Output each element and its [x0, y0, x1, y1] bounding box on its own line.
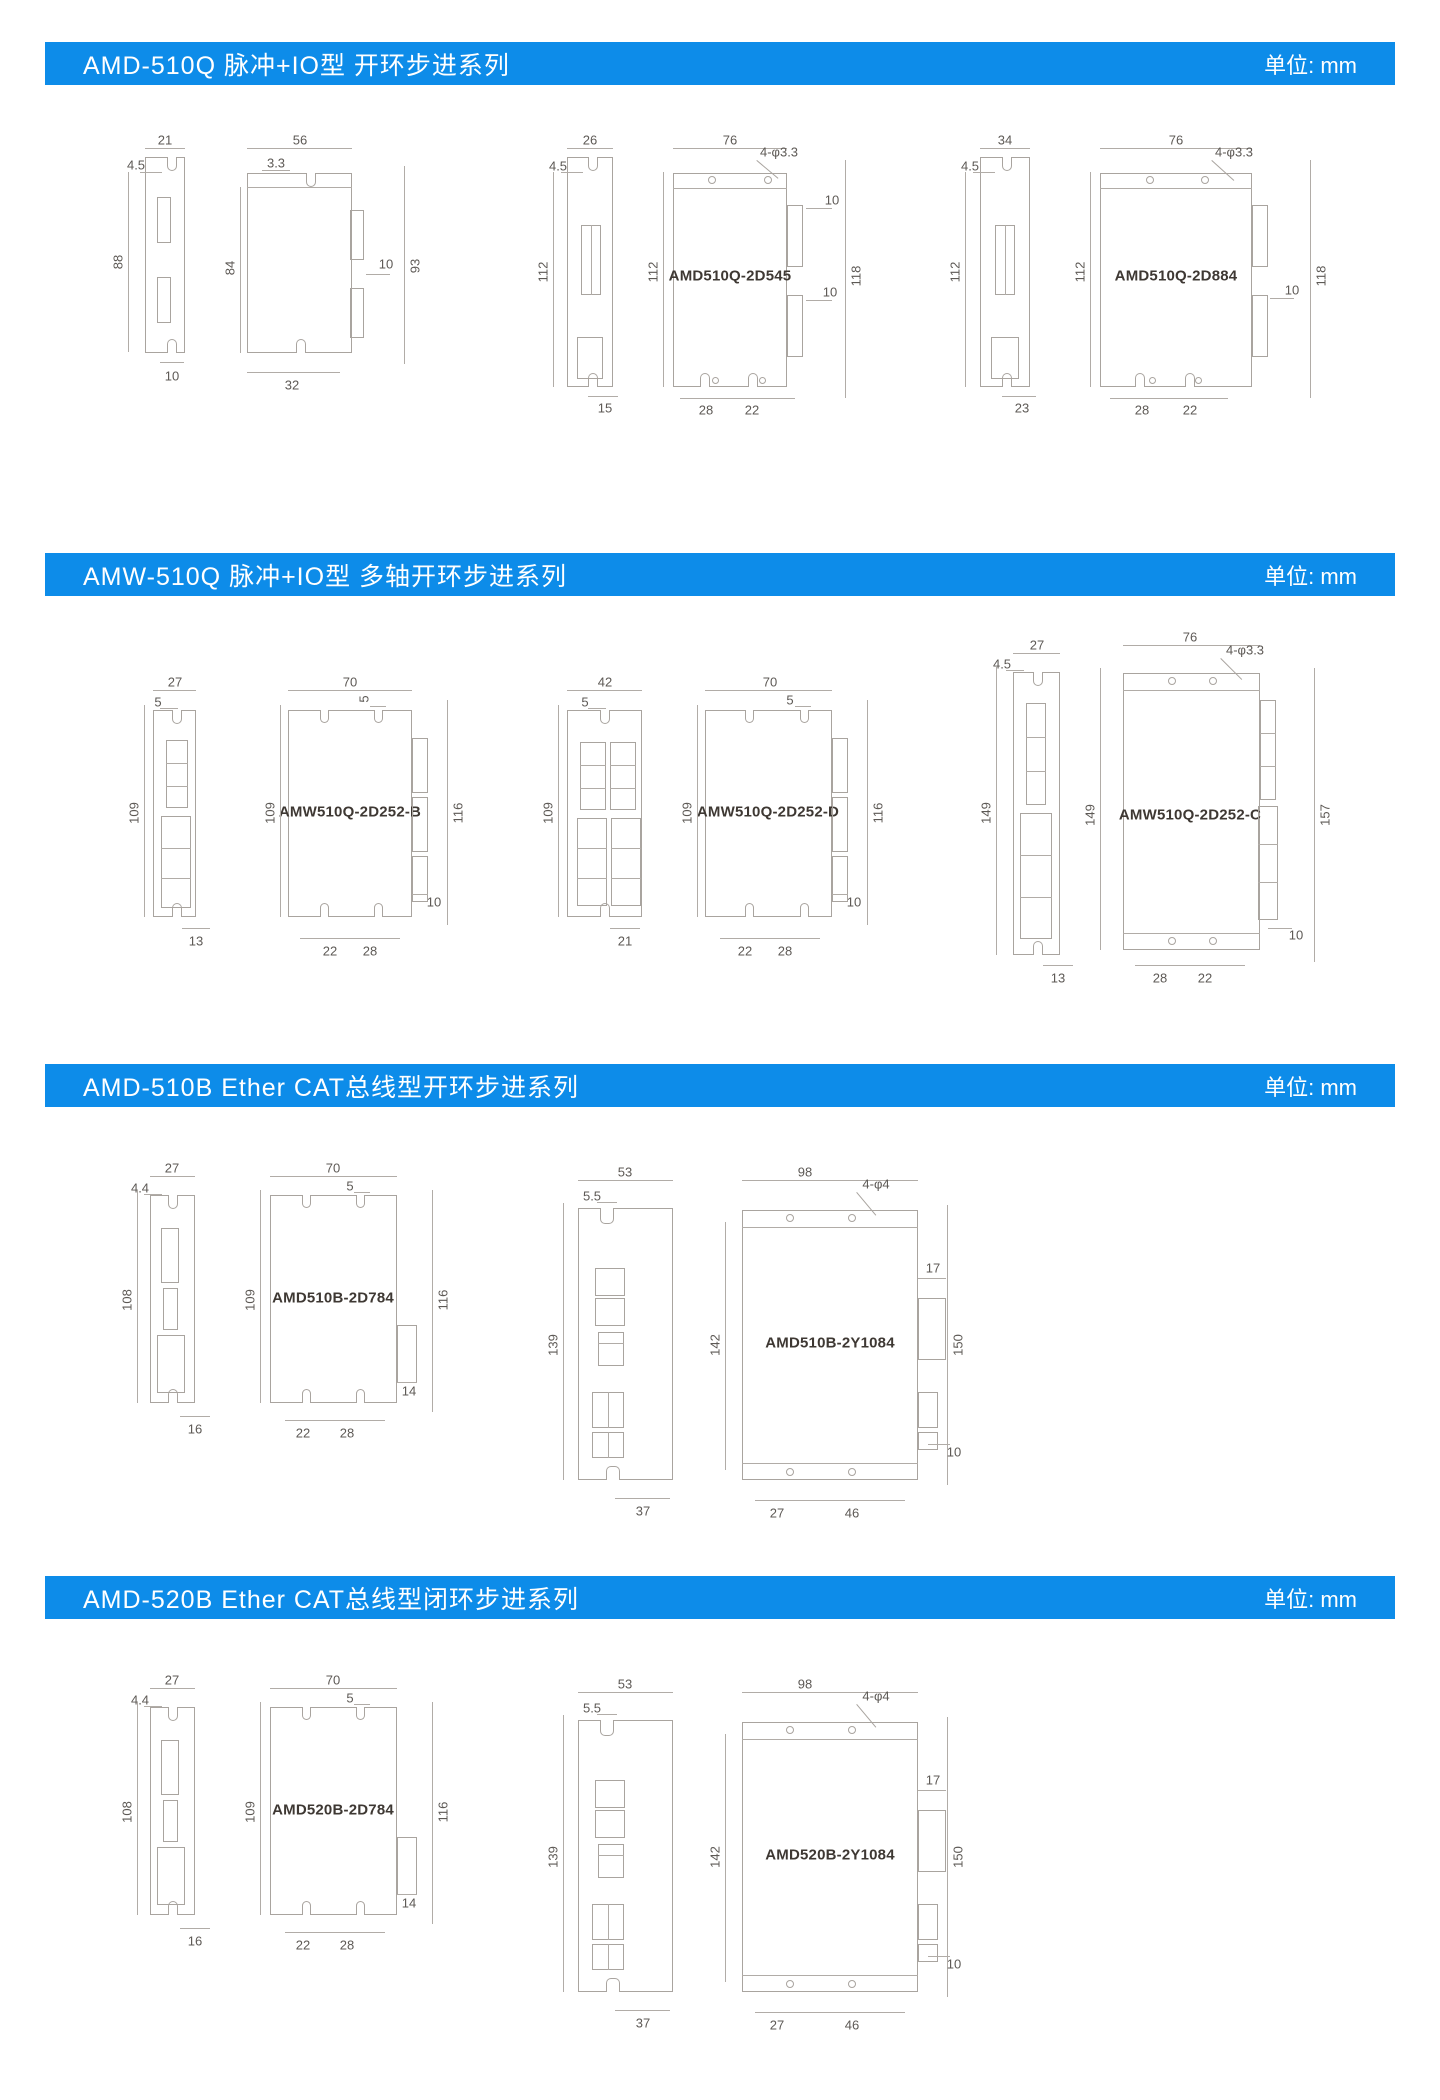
device-outline — [161, 1228, 179, 1283]
mounting-notch — [1185, 373, 1195, 387]
model-label: AMW510Q-2D252-C — [1119, 807, 1261, 824]
drawing-line — [432, 1702, 433, 1924]
drawing-line — [137, 1190, 138, 1403]
unit-label: 单位: mm — [1264, 559, 1357, 591]
dimension-label: 149 — [1083, 804, 1098, 826]
drawing-line — [161, 848, 191, 849]
drawing-line — [832, 894, 848, 895]
drawing-line — [160, 708, 178, 709]
drawing-line — [404, 166, 405, 364]
drawing-line — [247, 187, 352, 188]
drawing-line — [588, 708, 606, 709]
mounting-notch — [606, 1466, 620, 1480]
device-outline — [412, 797, 428, 852]
dimension-label: 150 — [951, 1334, 966, 1356]
mounting-notch — [606, 1978, 620, 1992]
device-outline — [412, 738, 428, 793]
drawing-line — [1260, 733, 1276, 734]
device-outline — [598, 1332, 624, 1366]
unit-label: 单位: mm — [1264, 1582, 1357, 1614]
dimension-label: 5 — [346, 1179, 353, 1194]
drawing-line — [145, 148, 185, 149]
mounting-notch — [1002, 157, 1012, 171]
drawing-line — [397, 1894, 417, 1895]
mounting-hole — [1209, 677, 1217, 685]
drawing-line — [558, 705, 559, 917]
device-outline — [918, 1392, 938, 1428]
mounting-notch — [356, 1195, 365, 1208]
dimension-label: 37 — [636, 2016, 650, 2031]
drawing-line — [742, 1463, 918, 1464]
drawing-line — [144, 705, 145, 917]
mounting-notch — [745, 903, 754, 917]
dimension-label: 10 — [947, 1957, 961, 1972]
drawing-line — [247, 148, 352, 149]
device-outline — [577, 337, 603, 379]
drawing-line — [563, 1715, 564, 1992]
drawing-line — [285, 1420, 385, 1421]
mounting-hole — [848, 1980, 856, 1988]
dimension-label: 17 — [926, 1261, 940, 1276]
dimension-label: 4-φ3.3 — [760, 145, 798, 160]
dimension-label: 108 — [120, 1801, 135, 1823]
drawing-line — [610, 788, 636, 789]
mounting-notch — [600, 1208, 614, 1224]
drawing-line — [610, 765, 636, 766]
mounting-notch — [296, 339, 306, 353]
unit-label: 单位: mm — [1264, 1070, 1357, 1102]
drawing-line — [928, 1444, 950, 1445]
mounting-notch — [600, 710, 610, 724]
drawing-line — [1260, 766, 1276, 767]
device-outline — [163, 1800, 178, 1842]
dimension-label: 27 — [770, 1506, 784, 1521]
device-outline — [595, 1268, 625, 1296]
dimension-label: 22 — [745, 403, 759, 418]
dimension-label: 108 — [120, 1289, 135, 1311]
drawing-line — [561, 172, 583, 173]
dimension-label: 27 — [165, 1673, 179, 1688]
dimension-label: 116 — [451, 803, 466, 824]
drawing-line — [128, 172, 129, 352]
device-outline — [1026, 703, 1046, 805]
dimension-label: 17 — [926, 1773, 940, 1788]
drawing-line — [1002, 396, 1036, 397]
device-outline — [787, 205, 803, 267]
drawing-line — [580, 788, 606, 789]
dimension-label: 76 — [1183, 630, 1197, 645]
drawing-line — [260, 1702, 261, 1915]
dimension-label: 21 — [158, 133, 172, 148]
dimension-label: 70 — [326, 1673, 340, 1688]
mounting-notch — [588, 157, 598, 171]
mounting-notch — [1135, 373, 1145, 387]
dimension-label: 112 — [536, 262, 551, 283]
drawing-line — [166, 763, 188, 764]
drawing-line — [578, 1180, 673, 1181]
dimension-label: 14 — [402, 1384, 416, 1399]
dimension-label: 27 — [165, 1161, 179, 1176]
device-outline — [157, 1847, 185, 1905]
drawing-line — [1135, 965, 1245, 966]
drawing-line — [161, 878, 191, 879]
drawing-line — [1110, 398, 1228, 399]
dimension-label: 112 — [646, 262, 661, 283]
drawing-line — [144, 1194, 162, 1195]
dimension-label: 15 — [598, 401, 612, 416]
dimension-label: 28 — [363, 944, 377, 959]
mounting-notch — [320, 903, 329, 917]
dimension-label: 14 — [402, 1896, 416, 1911]
mounting-notch — [168, 1707, 178, 1721]
dimension-label: 22 — [738, 944, 752, 959]
dimension-label: 26 — [583, 133, 597, 148]
device-outline — [918, 1904, 938, 1940]
dimension-label: 28 — [340, 1938, 354, 1953]
dimension-label: 70 — [763, 675, 777, 690]
dimension-label: 70 — [343, 675, 357, 690]
drawing-line — [288, 690, 412, 691]
section-header: AMD-510B Ether CAT总线型开环步进系列 单位: mm — [45, 1064, 1395, 1107]
drawing-line — [611, 878, 641, 879]
drawing-line — [432, 1190, 433, 1412]
device-outline — [1252, 295, 1268, 357]
drawing-line — [591, 225, 592, 295]
drawing-line — [725, 1222, 726, 1470]
device-outline — [918, 1810, 946, 1872]
drawing-line — [180, 1928, 210, 1929]
dimension-label: 139 — [546, 1846, 561, 1868]
drawing-line — [597, 1714, 617, 1715]
section-header: AMW-510Q 脉冲+IO型 多轴开环步进系列 单位: mm — [45, 553, 1395, 596]
drawing-line — [578, 1692, 673, 1693]
dimension-label: 27 — [1030, 638, 1044, 653]
drawing-line — [140, 172, 162, 173]
mounting-hole — [1149, 377, 1156, 384]
dimension-label: 5 — [786, 693, 793, 708]
mounting-hole — [786, 1468, 794, 1476]
drawing-line — [270, 1688, 397, 1689]
drawing-line — [588, 396, 618, 397]
dimension-label: 10 — [427, 895, 441, 910]
drawing-line — [397, 1382, 417, 1383]
dimension-label: 10 — [823, 285, 837, 300]
dimension-label: 22 — [1183, 403, 1197, 418]
device-outline — [577, 818, 607, 906]
dimension-label: 28 — [778, 944, 792, 959]
mounting-hole — [1209, 937, 1217, 945]
drawing-line — [180, 1416, 210, 1417]
drawing-line — [973, 172, 995, 173]
device-outline — [918, 1298, 946, 1360]
dimension-label: 70 — [326, 1161, 340, 1176]
dimension-label: 139 — [546, 1334, 561, 1356]
dimension-label: 37 — [636, 1504, 650, 1519]
model-label: AMD520B-2D784 — [272, 1802, 394, 1819]
device-outline — [991, 337, 1019, 379]
drawing-line — [285, 1932, 385, 1933]
drawing-line — [577, 848, 607, 849]
drawing-line — [608, 1904, 609, 1940]
mounting-notch — [172, 710, 182, 724]
dimension-label: 10 — [1285, 283, 1299, 298]
drawing-line — [947, 1717, 948, 1997]
drawing-line — [240, 187, 241, 353]
dimension-label: 88 — [111, 255, 126, 269]
drawing-line — [563, 1203, 564, 1480]
drawing-line — [705, 690, 832, 691]
drawing-line — [742, 1180, 918, 1181]
dimension-label: 10 — [847, 895, 861, 910]
drawing-line — [725, 1734, 726, 1982]
drawing-line — [354, 1192, 370, 1193]
mounting-notch — [374, 710, 383, 723]
drawing-line — [567, 690, 642, 691]
dimension-label: 118 — [1314, 266, 1329, 287]
dimension-label: 150 — [951, 1846, 966, 1868]
drawing-line — [262, 170, 290, 171]
drawing-line — [553, 172, 554, 387]
dimension-label: 109 — [263, 802, 278, 824]
dimension-label: 21 — [618, 934, 632, 949]
device-outline — [580, 742, 606, 810]
drawing-line — [1310, 160, 1311, 398]
mounting-notch — [167, 157, 177, 171]
dimension-label: 28 — [1153, 971, 1167, 986]
mounting-hole — [1195, 377, 1202, 384]
mounting-notch — [1033, 941, 1043, 955]
mounting-notch — [356, 1389, 365, 1403]
device-outline — [166, 740, 188, 808]
dimension-label: 10 — [165, 369, 179, 384]
mounting-hole — [708, 176, 716, 184]
drawing-line — [1005, 225, 1006, 295]
mounting-notch — [302, 1389, 311, 1403]
drawing-line — [742, 1692, 918, 1693]
dimension-label: 13 — [1051, 971, 1065, 986]
drawing-line — [755, 1500, 905, 1501]
drawing-line — [160, 362, 184, 363]
drawing-line — [1043, 965, 1073, 966]
drawing-line — [1268, 928, 1292, 929]
model-label: AMD510B-2Y1084 — [765, 1335, 895, 1352]
drawing-line — [1258, 882, 1278, 883]
unit-label: 单位: mm — [1264, 48, 1357, 80]
dimension-label: 23 — [1015, 401, 1029, 416]
mounting-hole — [786, 1214, 794, 1222]
dimension-label: 118 — [849, 266, 864, 287]
drawing-line — [412, 894, 428, 895]
device-outline — [787, 295, 803, 357]
device-outline — [397, 1325, 417, 1383]
drawing-line — [663, 172, 664, 387]
drawing-line — [280, 705, 281, 917]
dimension-label: 10 — [825, 193, 839, 208]
model-label: AMD510B-2D784 — [272, 1290, 394, 1307]
mounting-notch — [356, 1901, 365, 1915]
drawing-line — [577, 878, 607, 879]
device-outline — [1020, 813, 1052, 939]
dimension-label: 98 — [798, 1677, 812, 1692]
mounting-notch — [1033, 672, 1043, 686]
mounting-hole — [1201, 176, 1209, 184]
dimension-label: 4-φ4 — [862, 1689, 889, 1704]
mounting-hole — [764, 176, 772, 184]
mounting-notch — [700, 373, 710, 387]
drawing-line — [150, 1688, 195, 1689]
mounting-notch — [167, 339, 177, 353]
drawing-line — [996, 667, 997, 955]
drawing-line — [166, 786, 188, 787]
drawing-line — [300, 938, 400, 939]
drawing-line — [742, 1975, 918, 1976]
device-outline — [157, 1335, 185, 1393]
model-label: AMD510Q-2D884 — [1115, 268, 1238, 285]
mounting-notch — [356, 1707, 365, 1720]
model-label: AMD520B-2Y1084 — [765, 1847, 895, 1864]
drawing-line — [270, 1176, 397, 1177]
device-outline — [1258, 806, 1278, 920]
mounting-hole — [848, 1726, 856, 1734]
dimension-label: 42 — [598, 675, 612, 690]
drawing-line — [608, 1944, 609, 1970]
dimension-label: 149 — [979, 802, 994, 824]
mounting-notch — [168, 1195, 178, 1209]
dimension-label: 27 — [770, 2018, 784, 2033]
drawing-line — [247, 372, 340, 373]
device-outline — [918, 1432, 938, 1450]
dimension-label: 13 — [189, 934, 203, 949]
drawing-line — [153, 690, 196, 691]
mounting-hole — [759, 377, 766, 384]
drawing-line — [720, 938, 820, 939]
drawing-line — [806, 300, 832, 301]
drawing-line — [580, 765, 606, 766]
drawing-line — [1020, 855, 1052, 856]
drawing-line — [673, 188, 787, 189]
dimension-label: 27 — [168, 675, 182, 690]
dimension-label: 53 — [618, 1165, 632, 1180]
drawing-line — [137, 1702, 138, 1915]
device-outline — [610, 742, 636, 810]
mounting-notch — [374, 903, 383, 917]
drawing-line — [1314, 668, 1315, 962]
drawing-line — [615, 2010, 670, 2011]
dimension-label: 84 — [223, 261, 238, 275]
dimension-label: 22 — [296, 1938, 310, 1953]
dimension-label: 46 — [845, 1506, 859, 1521]
drawing-line — [795, 706, 811, 707]
dimension-label: 28 — [340, 1426, 354, 1441]
drawings-page: AMD-510Q 脉冲+IO型 开环步进系列 单位: mm AMW-510Q 脉… — [0, 0, 1440, 2100]
dimension-label: 76 — [1169, 133, 1183, 148]
section-title: AMD-510B Ether CAT总线型开环步进系列 — [83, 1068, 579, 1104]
dimension-label: 56 — [293, 133, 307, 148]
device-outline — [611, 818, 641, 906]
drawing-line — [260, 1190, 261, 1403]
dimension-label: 116 — [436, 1290, 451, 1311]
drawing-line — [1026, 771, 1046, 772]
drawing-line — [354, 1704, 370, 1705]
drawing-line — [144, 1706, 162, 1707]
drawing-line — [1100, 188, 1252, 189]
drawing-line — [1090, 172, 1091, 387]
mounting-notch — [302, 1195, 311, 1208]
dimension-label: 116 — [436, 1802, 451, 1823]
drawing-line — [806, 208, 832, 209]
mounting-hole — [786, 1726, 794, 1734]
mounting-hole — [1168, 937, 1176, 945]
dimension-label: 93 — [408, 259, 423, 273]
dimension-label: 16 — [188, 1422, 202, 1437]
drawing-line — [742, 1227, 918, 1228]
drawing-line — [845, 160, 846, 398]
device-outline — [157, 197, 171, 243]
dimension-label: 5 — [357, 695, 372, 702]
mounting-hole — [1168, 677, 1176, 685]
drawing-line — [755, 2012, 905, 2013]
mounting-hole — [786, 1980, 794, 1988]
drawing-line — [928, 1956, 950, 1957]
drawing-line — [615, 1498, 670, 1499]
device-outline — [595, 1298, 625, 1326]
device-outline — [412, 856, 428, 902]
drawing-line — [1026, 737, 1046, 738]
dimension-label: 112 — [948, 262, 963, 283]
dimension-label: 28 — [699, 403, 713, 418]
drawing-line — [918, 1790, 946, 1791]
mounting-hole — [712, 377, 719, 384]
device-outline — [397, 1837, 417, 1895]
dimension-label: 98 — [798, 1165, 812, 1180]
device-outline — [350, 210, 364, 260]
dimension-label: 34 — [998, 133, 1012, 148]
drawing-line — [867, 700, 868, 925]
drawing-line — [608, 1392, 609, 1428]
device-outline — [918, 1944, 938, 1962]
dimension-label: 3.3 — [267, 156, 285, 171]
dimension-label: 116 — [871, 803, 886, 824]
dimension-label: 22 — [296, 1426, 310, 1441]
mounting-notch — [320, 710, 329, 723]
drawing-line — [947, 1205, 948, 1485]
drawing-line — [1020, 897, 1052, 898]
mounting-hole — [848, 1214, 856, 1222]
drawing-line — [608, 1432, 609, 1458]
drawing-line — [1123, 690, 1260, 691]
drawing-line — [980, 148, 1030, 149]
dimension-label: 4.5 — [127, 158, 145, 173]
drawing-line — [182, 928, 210, 929]
dimension-label: 157 — [1318, 804, 1333, 826]
dimension-label: 112 — [1073, 262, 1088, 283]
mounting-notch — [745, 710, 754, 723]
drawing-line — [150, 1176, 195, 1177]
device-outline — [832, 856, 848, 902]
device-outline — [1252, 205, 1268, 267]
drawing-line — [1123, 933, 1260, 934]
drawing-line — [1270, 298, 1294, 299]
drawing-line — [567, 148, 613, 149]
dimension-label: 5 — [346, 1691, 353, 1706]
device-outline — [832, 738, 848, 793]
dimension-label: 109 — [680, 802, 695, 824]
drawing-line — [918, 1278, 946, 1279]
mounting-notch — [302, 1901, 311, 1915]
section-header: AMD-520B Ether CAT总线型闭环步进系列 单位: mm — [45, 1576, 1395, 1619]
mounting-notch — [748, 373, 758, 387]
mounting-notch — [800, 903, 809, 917]
